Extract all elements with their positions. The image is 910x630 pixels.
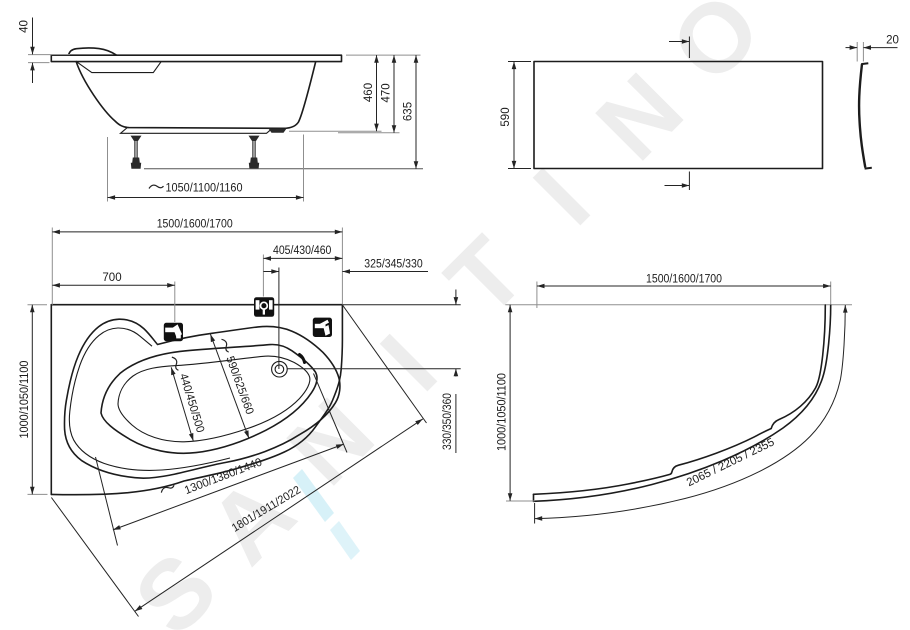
svg-text:2065 / 2205 / 2355: 2065 / 2205 / 2355 <box>685 436 777 489</box>
svg-text:635: 635 <box>403 102 415 121</box>
svg-text:1050/1100/1160: 1050/1100/1160 <box>166 183 243 195</box>
svg-text:405/430/460: 405/430/460 <box>273 245 331 257</box>
svg-text:1500/1600/1700: 1500/1600/1700 <box>157 219 233 231</box>
svg-text:I: I <box>513 148 610 245</box>
svg-text:N: N <box>266 377 394 505</box>
svg-text:O: O <box>649 0 781 103</box>
svg-text:440/450/500: 440/450/500 <box>177 372 206 434</box>
svg-text:20: 20 <box>886 35 899 47</box>
svg-text:330/350/360: 330/350/360 <box>442 393 454 450</box>
svg-text:1500/1600/1700: 1500/1600/1700 <box>646 274 722 286</box>
svg-text:40: 40 <box>19 20 31 33</box>
svg-text:S: S <box>113 531 237 630</box>
svg-text:T: T <box>425 216 545 336</box>
svg-text:1000/1050/1100: 1000/1050/1100 <box>497 373 509 451</box>
svg-text:590: 590 <box>500 107 512 126</box>
svg-text:N: N <box>575 52 703 180</box>
svg-text:1000/1050/1100: 1000/1050/1100 <box>19 361 31 439</box>
svg-text:460: 460 <box>363 83 375 102</box>
svg-text:470: 470 <box>381 83 393 102</box>
svg-text:700: 700 <box>102 272 121 284</box>
svg-text:325/345/330: 325/345/330 <box>364 258 422 270</box>
svg-text:590/625/660: 590/625/660 <box>223 355 255 416</box>
